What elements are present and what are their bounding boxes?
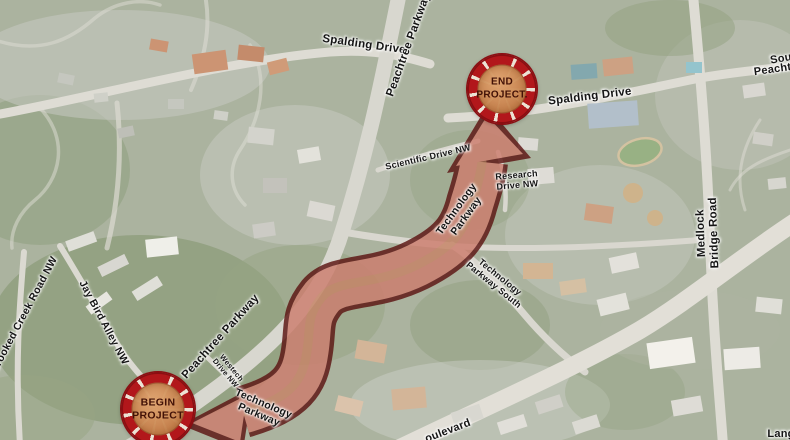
map-fade-overlay: [0, 0, 790, 440]
end-project-line2: PROJECT.: [476, 89, 527, 101]
end-project-line1: END: [476, 77, 527, 89]
begin-project-line2: PROJECT: [132, 409, 184, 422]
end-project-badge-inner: END PROJECT.: [478, 65, 527, 114]
end-project-label: END PROJECT.: [476, 77, 527, 101]
aerial-map-canvas: [0, 0, 790, 440]
begin-project-badge-inner: BEGIN PROJECT: [132, 383, 185, 436]
begin-project-badge: BEGIN PROJECT: [122, 373, 195, 440]
begin-project-label: BEGIN PROJECT: [132, 396, 184, 422]
project-map: Spalding Drive Peachtree Parkway Spaldin…: [0, 0, 790, 440]
begin-project-line1: BEGIN: [132, 396, 184, 409]
end-project-badge: END PROJECT.: [468, 55, 537, 124]
